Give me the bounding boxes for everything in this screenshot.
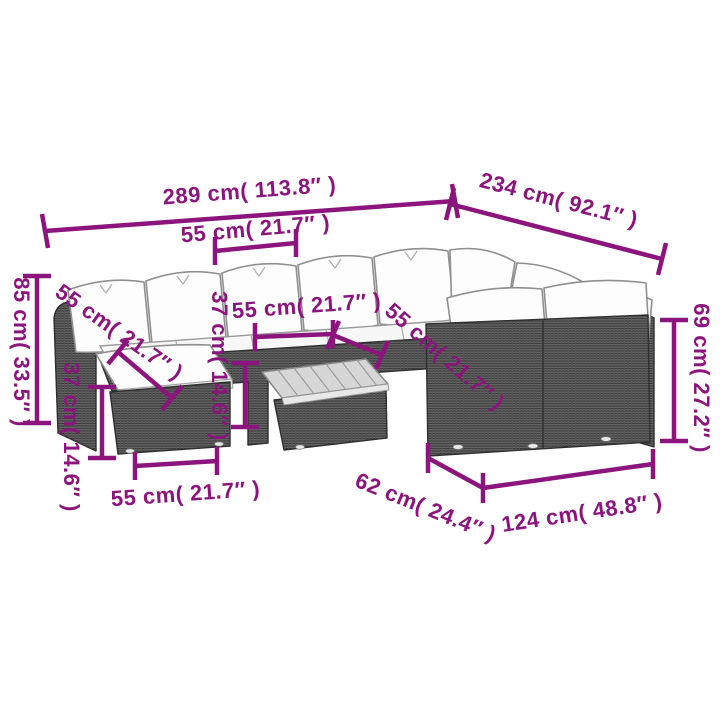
two-seater-foot-3 xyxy=(601,437,611,442)
dimension-line xyxy=(483,449,653,488)
coffee-table xyxy=(262,359,389,450)
two-seater-foot-2 xyxy=(528,444,538,449)
diagram-canvas: 289 cm( 113.8″ ) 234 cm( 92.1″ ) 55 cm( … xyxy=(0,0,720,720)
table-foot xyxy=(296,445,305,449)
dimension-label: 37 cm( 14.6″ ) xyxy=(59,362,84,512)
dimension-label: 55 cm( 21.7″ ) xyxy=(110,476,261,511)
dimension-line xyxy=(660,320,688,441)
dimension-label: 85 cm( 33.5″ ) xyxy=(9,277,34,427)
dimension-label: 62 cm( 24.4″ ) xyxy=(352,467,500,546)
dimension-two-seater-width: 124 cm( 48.8″ ) xyxy=(483,449,664,537)
dimension-label: 37 cm( 14.6″ ) xyxy=(207,291,232,441)
dimension-stool-width: 55 cm( 21.7″ ) xyxy=(110,447,261,511)
dimension-back-height: 85 cm( 33.5″ ) xyxy=(9,276,51,427)
dimension-label: 124 cm( 48.8″ ) xyxy=(500,488,664,537)
dimension-diagram: 289 cm( 113.8″ ) 234 cm( 92.1″ ) 55 cm( … xyxy=(0,0,720,720)
footstool-foot-2 xyxy=(215,442,224,446)
dimension-label: 69 cm( 27.2″ ) xyxy=(689,303,714,453)
two-seater-foot-1 xyxy=(453,445,463,450)
dimension-label: 234 cm( 92.1″ ) xyxy=(477,167,640,232)
dimension-table-width: 62 cm( 24.4″ ) xyxy=(352,443,500,547)
dimension-sofa-height-right: 69 cm( 27.2″ ) xyxy=(660,303,714,453)
dimension-label: 55 cm( 21.7″ ) xyxy=(180,210,331,248)
dimension-label: 289 cm( 113.8″ ) xyxy=(162,172,337,210)
